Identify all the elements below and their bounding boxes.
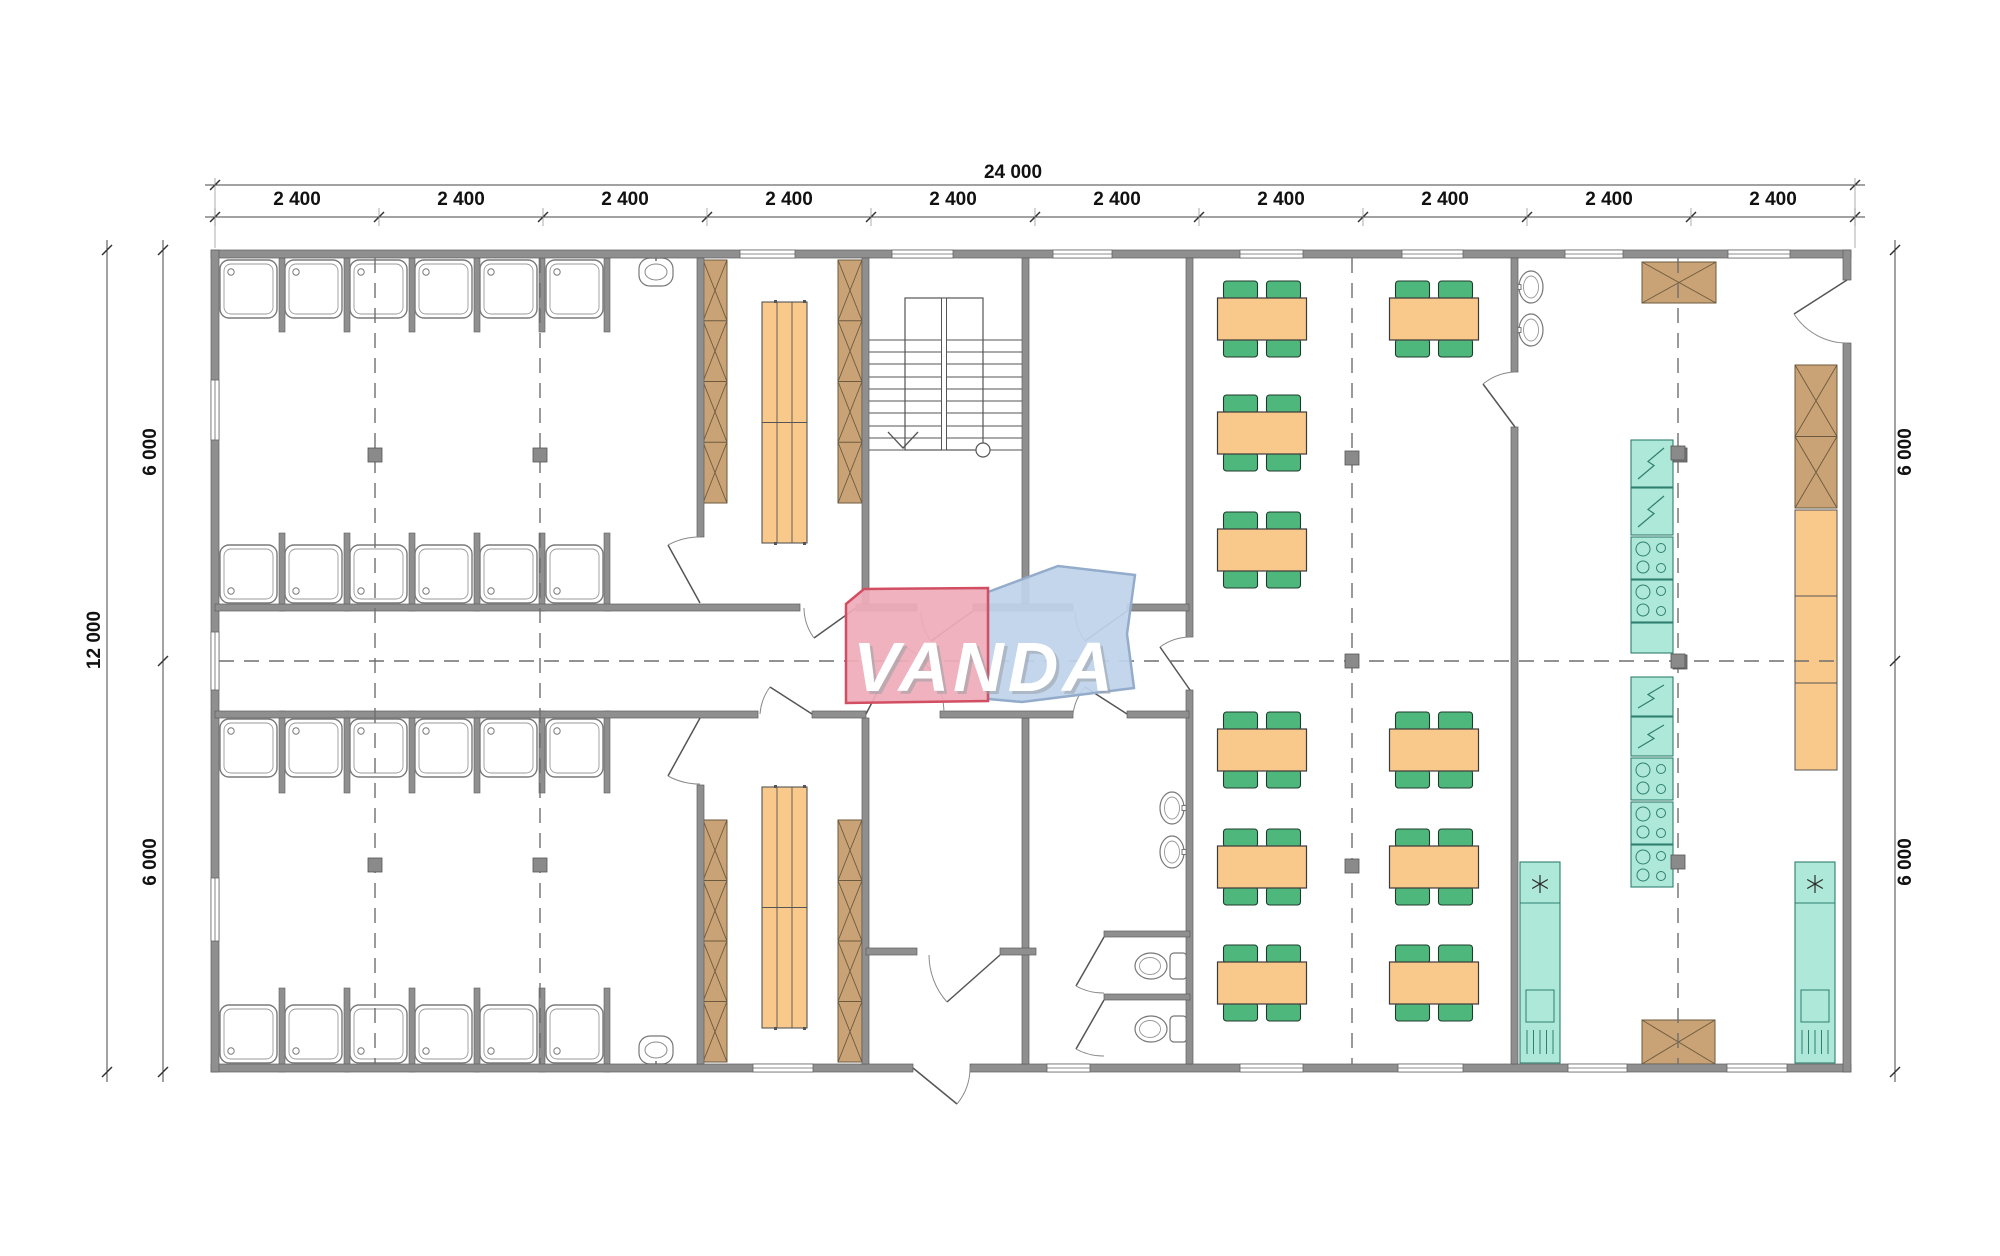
wall xyxy=(697,785,704,1064)
dim-left-half-top: 6 000 xyxy=(140,428,161,476)
shower-partition xyxy=(474,711,480,793)
wall xyxy=(1000,948,1036,955)
structural-column xyxy=(1671,654,1685,668)
shower-stall xyxy=(415,719,472,777)
dim-segment-label: 2 400 xyxy=(1585,189,1633,210)
door-leaf xyxy=(947,955,1000,1002)
structural-column xyxy=(1345,654,1359,668)
shower-partition xyxy=(604,711,610,793)
chair xyxy=(1267,570,1301,588)
door-swing-arc xyxy=(760,687,770,714)
shower-partition xyxy=(279,533,285,611)
wall xyxy=(1843,343,1851,1072)
structural-column xyxy=(533,448,547,462)
wall xyxy=(812,711,866,718)
chair xyxy=(1396,829,1430,847)
wall xyxy=(1186,690,1193,1064)
kitchen-counter xyxy=(1795,510,1837,596)
bench-foot xyxy=(803,1027,806,1030)
wall xyxy=(1022,718,1029,1064)
chair xyxy=(1396,1003,1430,1021)
door-leaf xyxy=(913,1068,957,1104)
chair xyxy=(1224,1003,1258,1021)
bench-foot xyxy=(803,785,806,788)
shower-partition xyxy=(409,711,415,793)
shower-partition xyxy=(474,533,480,611)
shower-partition xyxy=(474,988,480,1072)
wall xyxy=(1104,994,1190,1000)
dim-segment-label: 2 400 xyxy=(929,189,977,210)
structural-column xyxy=(1345,451,1359,465)
wall xyxy=(1104,931,1190,937)
dining-table xyxy=(1218,412,1307,454)
dining-table xyxy=(1390,298,1479,340)
shower-partition xyxy=(604,533,610,611)
sink xyxy=(639,258,673,286)
door-leaf xyxy=(1160,647,1190,690)
door-leaf xyxy=(1076,937,1104,986)
chair xyxy=(1224,281,1258,299)
chair xyxy=(1439,887,1473,905)
shower-stall xyxy=(220,545,277,603)
shower-stall xyxy=(415,545,472,603)
shower-stall xyxy=(350,260,407,318)
door-swing-arc xyxy=(1794,314,1847,343)
shower-stall xyxy=(350,1005,407,1063)
shower-stall xyxy=(415,260,472,318)
shower-stall xyxy=(480,545,537,603)
wall xyxy=(215,604,800,611)
shower-stall xyxy=(285,719,342,777)
shower-partition xyxy=(409,988,415,1072)
door-leaf xyxy=(668,718,700,776)
shower-partition xyxy=(409,533,415,611)
logo-text: VANDA xyxy=(853,628,1117,706)
door-swing-arc xyxy=(668,776,700,784)
shower-stall xyxy=(415,1005,472,1063)
dining-table xyxy=(1218,529,1307,571)
dim-segment-label: 2 400 xyxy=(1257,189,1305,210)
dining-table xyxy=(1218,729,1307,771)
chair xyxy=(1267,1003,1301,1021)
dim-right-half-bottom: 6 000 xyxy=(1895,838,1916,886)
shower-partition xyxy=(279,988,285,1072)
wall xyxy=(940,711,1073,718)
bench-foot xyxy=(774,300,777,303)
dim-segment-label: 2 400 xyxy=(437,189,485,210)
shower-partition xyxy=(474,258,480,332)
dining-table xyxy=(1390,962,1479,1004)
door-swing-arc xyxy=(1483,372,1515,384)
structural-column xyxy=(368,448,382,462)
chair xyxy=(1224,512,1258,530)
wall xyxy=(866,948,917,955)
chair xyxy=(1224,395,1258,413)
chair xyxy=(1267,712,1301,730)
wall xyxy=(697,258,704,537)
stair-post xyxy=(976,443,990,457)
chair xyxy=(1396,887,1430,905)
dim-segment-label: 2 400 xyxy=(1749,189,1797,210)
door-swing-arc xyxy=(957,1068,970,1104)
kitchen-counter xyxy=(1795,596,1837,683)
chair xyxy=(1439,829,1473,847)
toilet-tank xyxy=(1170,1016,1187,1042)
dim-total-height: 12 000 xyxy=(84,611,105,669)
kitchen-unit-stove xyxy=(1631,580,1673,622)
chair xyxy=(1267,281,1301,299)
wall xyxy=(1843,250,1851,280)
bench-foot xyxy=(774,785,777,788)
dim-right-half-top: 6 000 xyxy=(1895,428,1916,476)
wall xyxy=(862,258,869,604)
door-swing-arc xyxy=(1076,1049,1104,1056)
chair xyxy=(1396,281,1430,299)
stair-direction-arrow-icon xyxy=(888,432,918,448)
shower-stall xyxy=(480,260,537,318)
bench-foot xyxy=(803,300,806,303)
chair xyxy=(1267,339,1301,357)
door-swing-arc xyxy=(668,537,700,545)
chair xyxy=(1439,945,1473,963)
chair xyxy=(1267,945,1301,963)
structural-column xyxy=(1345,859,1359,873)
door-leaf xyxy=(1483,384,1515,427)
kitchen-counter xyxy=(1795,683,1837,770)
kitchen-unit-stove xyxy=(1631,537,1673,579)
dining-table xyxy=(1218,298,1307,340)
wall xyxy=(1511,258,1518,372)
wall xyxy=(1127,604,1189,611)
chair xyxy=(1224,712,1258,730)
wall xyxy=(1022,258,1029,604)
bench-foot xyxy=(803,542,806,545)
wall xyxy=(1511,427,1518,1064)
shower-partition xyxy=(279,711,285,793)
door-swing-arc xyxy=(1076,986,1104,993)
dining-table xyxy=(1390,846,1479,888)
chair xyxy=(1267,770,1301,788)
shower-partition xyxy=(344,258,350,332)
shower-stall xyxy=(285,545,342,603)
door-swing-arc xyxy=(804,608,814,638)
kitchen-unit-plain xyxy=(1631,623,1673,653)
bench-foot xyxy=(774,542,777,545)
shower-partition xyxy=(604,258,610,332)
chair xyxy=(1396,770,1430,788)
structural-column xyxy=(1671,855,1685,869)
structural-column xyxy=(533,858,547,872)
chair xyxy=(1267,453,1301,471)
dim-segment-label: 2 400 xyxy=(1093,189,1141,210)
chair xyxy=(1267,829,1301,847)
kitchen-unit-stove xyxy=(1631,845,1673,887)
dining-table xyxy=(1218,846,1307,888)
chair xyxy=(1396,945,1430,963)
door-leaf xyxy=(1076,1000,1104,1049)
kitchen-unit-stove xyxy=(1631,802,1673,844)
shower-stall xyxy=(480,1005,537,1063)
floor-plan-drawing: 24 000 12 000 6 000 6 000 6 000 6 000 2 … xyxy=(0,0,2000,1256)
shower-partition xyxy=(344,711,350,793)
door-swing-arc xyxy=(929,955,947,1002)
chair xyxy=(1267,512,1301,530)
dim-segment-label: 2 400 xyxy=(765,189,813,210)
shower-partition xyxy=(344,988,350,1072)
chair xyxy=(1439,1003,1473,1021)
door-swing-arc xyxy=(1160,637,1190,647)
chair xyxy=(1224,770,1258,788)
dim-segment-label: 2 400 xyxy=(601,189,649,210)
door-leaf xyxy=(770,687,812,714)
floor-plan-canvas: 24 000 12 000 6 000 6 000 6 000 6 000 2 … xyxy=(0,0,2000,1256)
chair xyxy=(1439,339,1473,357)
staircase xyxy=(869,298,1022,457)
dining-table xyxy=(1218,962,1307,1004)
sink xyxy=(639,1036,673,1064)
dim-segment-label: 2 400 xyxy=(273,189,321,210)
chair xyxy=(1439,281,1473,299)
chair xyxy=(1224,945,1258,963)
dimension-segment-labels: 2 4002 4002 4002 4002 4002 4002 4002 400… xyxy=(273,189,1797,210)
toilet-tank xyxy=(1170,953,1187,979)
chair xyxy=(1396,339,1430,357)
chair xyxy=(1267,395,1301,413)
shower-stall xyxy=(220,719,277,777)
shower-partition xyxy=(539,711,545,793)
shower-stall xyxy=(480,719,537,777)
dim-total-width: 24 000 xyxy=(984,162,1042,183)
shower-stall xyxy=(546,1005,603,1063)
chair xyxy=(1224,453,1258,471)
chair xyxy=(1224,887,1258,905)
shower-partition xyxy=(604,988,610,1072)
wall xyxy=(862,718,869,1064)
door-leaf xyxy=(1794,280,1847,314)
shower-partition xyxy=(409,258,415,332)
stair-railing xyxy=(942,298,947,450)
shower-stall xyxy=(546,545,603,603)
shower-stall xyxy=(285,1005,342,1063)
shower-stall xyxy=(546,260,603,318)
chair xyxy=(1396,712,1430,730)
shower-stall xyxy=(546,719,603,777)
chair xyxy=(1267,887,1301,905)
shower-stall xyxy=(350,719,407,777)
shower-stall xyxy=(350,545,407,603)
shower-partition xyxy=(344,533,350,611)
dining-table xyxy=(1390,729,1479,771)
kitchen-unit-stove xyxy=(1631,758,1673,800)
structural-column xyxy=(1671,446,1685,460)
chair xyxy=(1439,712,1473,730)
shower-stall xyxy=(285,260,342,318)
wall xyxy=(215,711,758,718)
structural-column xyxy=(368,858,382,872)
wall xyxy=(1186,258,1193,637)
chair xyxy=(1439,770,1473,788)
wall xyxy=(1127,711,1189,718)
dim-left-half-bottom: 6 000 xyxy=(140,838,161,886)
chair xyxy=(1224,339,1258,357)
shower-stall xyxy=(220,1005,277,1063)
door-leaf xyxy=(668,545,700,603)
vanda-watermark-logo: VANDA VANDA xyxy=(846,566,1135,709)
dim-segment-label: 2 400 xyxy=(1421,189,1469,210)
shower-partition xyxy=(279,258,285,332)
shower-stall xyxy=(220,260,277,318)
bench-foot xyxy=(774,1027,777,1030)
chair xyxy=(1224,829,1258,847)
chair xyxy=(1224,570,1258,588)
